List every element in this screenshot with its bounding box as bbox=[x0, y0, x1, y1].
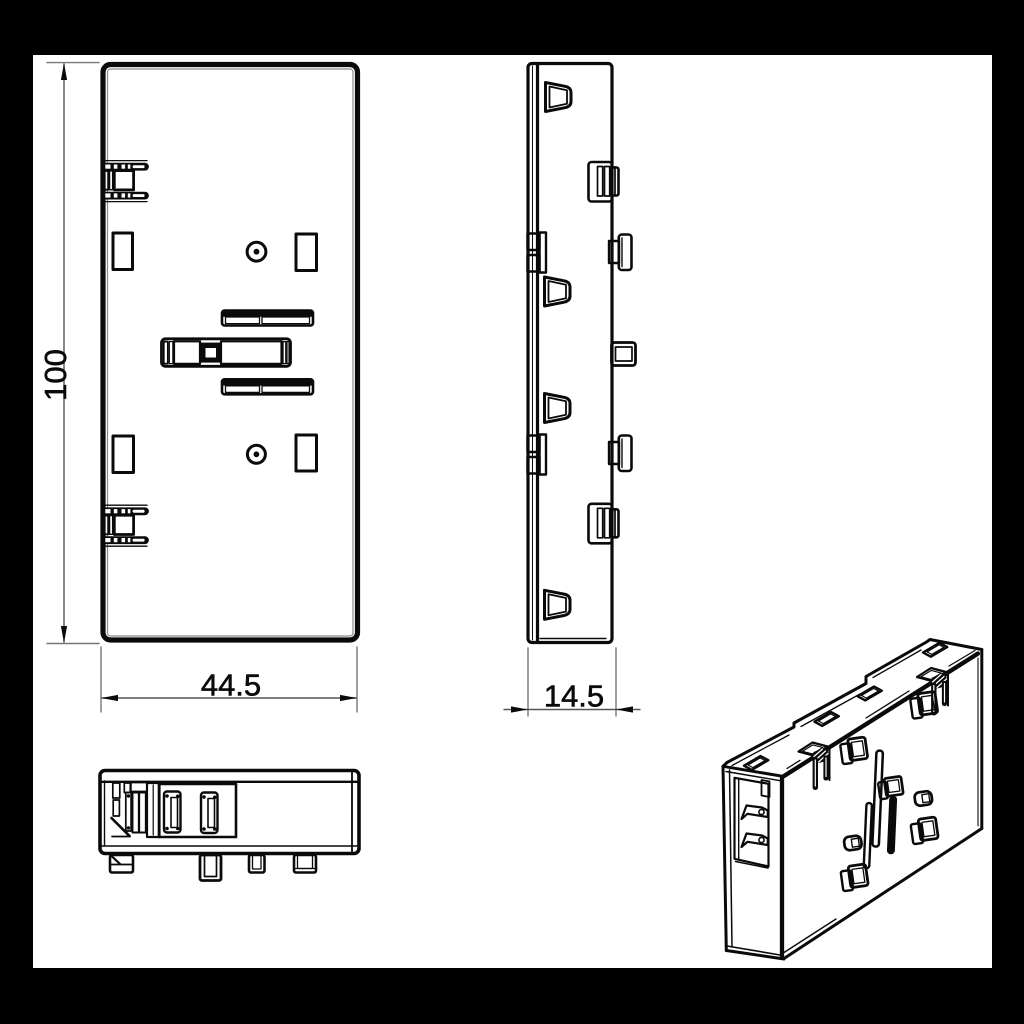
svg-text:14.5: 14.5 bbox=[544, 679, 604, 714]
svg-text:100: 100 bbox=[38, 349, 73, 401]
svg-text:44.5: 44.5 bbox=[201, 667, 261, 702]
